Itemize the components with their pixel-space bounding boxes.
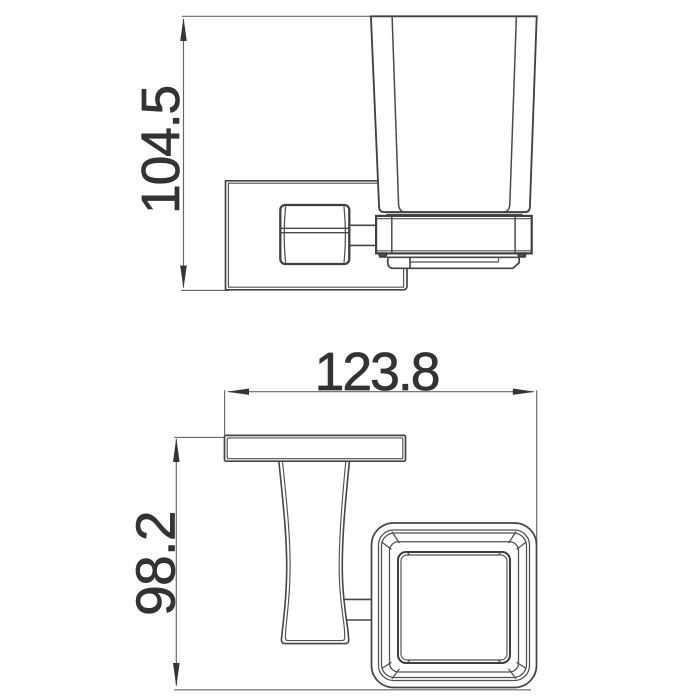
- svg-text:104.5: 104.5: [132, 86, 191, 214]
- svg-text:123.8: 123.8: [315, 343, 439, 402]
- svg-text:98.2: 98.2: [125, 511, 187, 616]
